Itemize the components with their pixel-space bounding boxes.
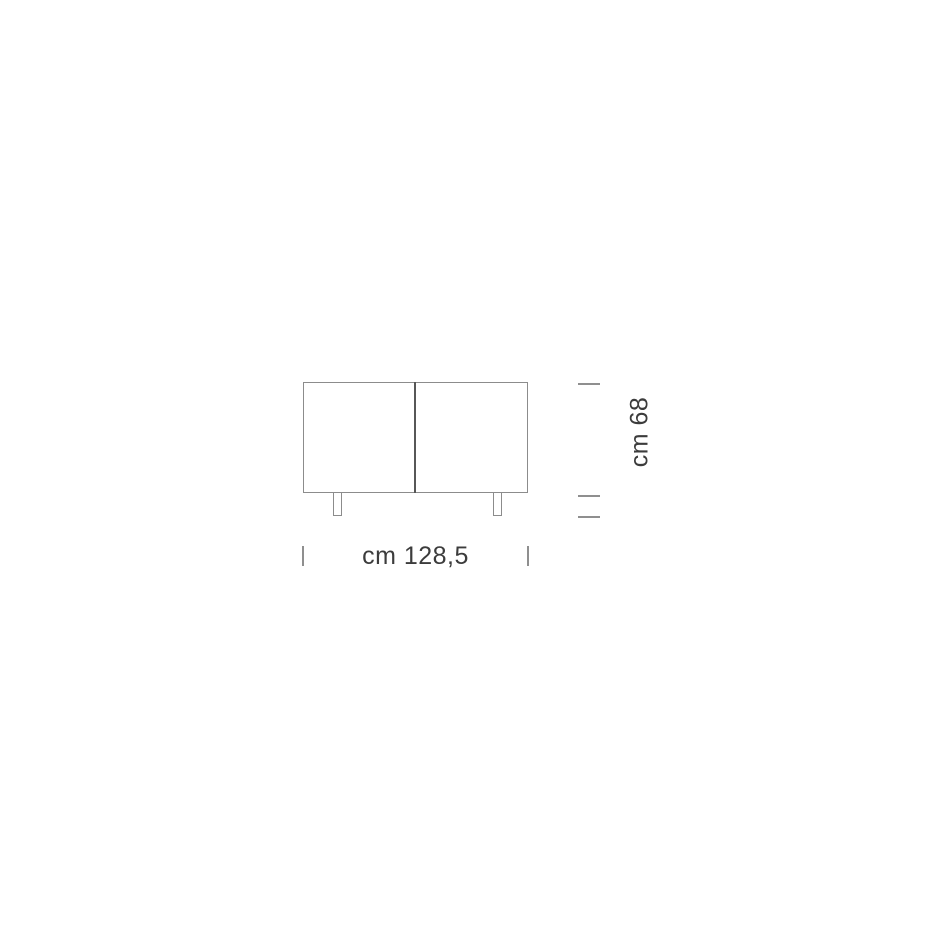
door-divider-line bbox=[414, 382, 416, 493]
height-dimension-tick-top bbox=[578, 383, 600, 385]
left-leg bbox=[333, 492, 342, 516]
height-dimension-tick-middle bbox=[578, 495, 600, 497]
height-dimension-label: cm 68 bbox=[626, 397, 655, 468]
cabinet-body-outline bbox=[303, 382, 528, 493]
right-leg bbox=[493, 492, 502, 516]
height-dimension-tick-bottom bbox=[578, 516, 600, 518]
width-dimension-label: cm 128,5 bbox=[303, 542, 528, 571]
dimension-diagram-canvas: cm 68 cm 128,5 bbox=[0, 0, 950, 950]
